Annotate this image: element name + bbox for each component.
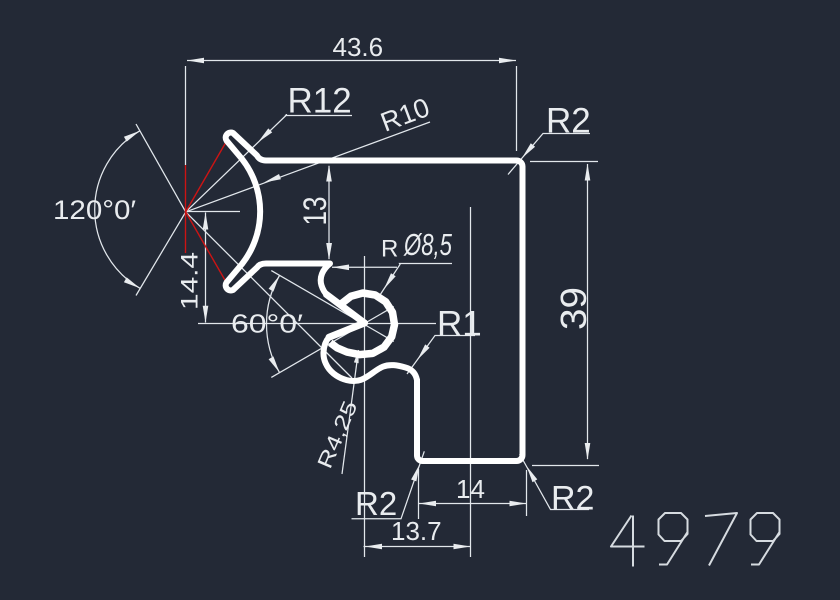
svg-text:43.6: 43.6 [333,32,384,62]
svg-text:R2: R2 [355,485,397,522]
svg-text:R2: R2 [546,102,591,141]
svg-text:Ø8,5: Ø8,5 [403,227,452,262]
svg-text:R1: R1 [437,305,482,344]
svg-text:R: R [381,236,398,263]
svg-text:13.7: 13.7 [391,516,442,546]
svg-text:R12: R12 [288,82,352,121]
svg-text:R2: R2 [551,480,594,518]
svg-text:39: 39 [553,287,594,330]
svg-text:60°0′: 60°0′ [231,309,303,339]
svg-text:120°0′: 120°0′ [53,195,136,225]
svg-text:13: 13 [297,197,333,226]
svg-text:14.4: 14.4 [177,252,204,310]
svg-text:14: 14 [456,474,485,504]
